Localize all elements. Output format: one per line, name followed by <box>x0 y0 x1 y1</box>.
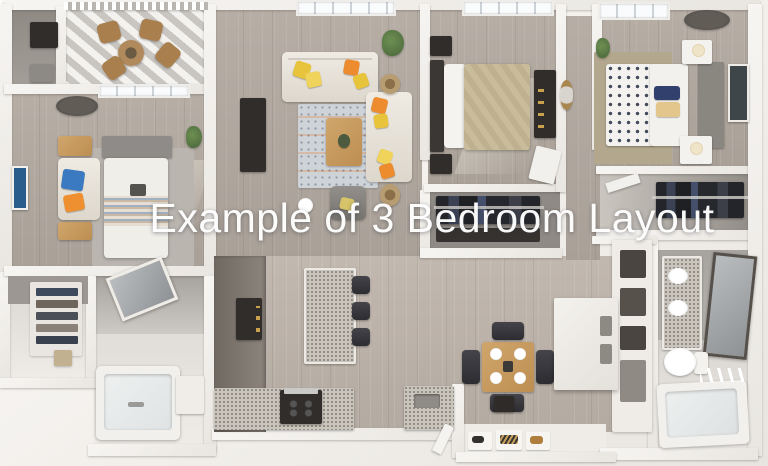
bedroom-2-dresser-handles <box>538 80 544 128</box>
bedroom-3-lamp-top <box>692 44 705 57</box>
stove-burners <box>286 398 316 418</box>
wall-closet1-bottom <box>0 378 96 388</box>
linen-cubby-3 <box>620 326 646 350</box>
bedroom-1-headboard <box>102 136 172 158</box>
bedroom-2-nightstand-top <box>430 36 452 56</box>
bedroom-1-window <box>98 84 190 98</box>
linen-cubby-1 <box>620 250 646 278</box>
wall-below-bedroom1 <box>4 266 216 276</box>
bedroom-2-headboard <box>430 60 444 152</box>
kitchen-refrigerator-handles <box>256 306 260 332</box>
storage-shelving-unit <box>30 22 58 48</box>
bathroom-1-vanity <box>176 376 204 414</box>
wall-closet2-bottom <box>420 248 562 258</box>
wall-bedroom3-bottom <box>596 166 758 174</box>
bedroom-3-lamp-bottom <box>690 142 703 155</box>
bedroom-1-orange-pillow <box>63 192 86 212</box>
wall-bath2-bottom <box>600 448 758 460</box>
bedroom-2-pillows <box>444 64 466 148</box>
laundry-cabinet-drawer-1 <box>600 316 612 336</box>
bedroom-2-nightstand-bottom <box>430 154 452 174</box>
dining-chair-top <box>492 322 524 340</box>
wall-entry-bottom <box>456 452 616 462</box>
bathroom-2-sink-2 <box>668 300 688 316</box>
bar-stool-3 <box>352 328 370 346</box>
wicker-side-table <box>380 74 400 94</box>
closet-1-folded-clothes-5 <box>36 336 78 344</box>
bedroom-3-tan-pillow <box>656 102 680 117</box>
linen-cubby-2 <box>620 288 646 316</box>
bar-stool-1 <box>352 276 370 294</box>
bedroom-1-wall-art <box>12 166 28 210</box>
bedroom-3-navy-pillow <box>654 86 680 100</box>
storage-utility-box <box>30 64 54 82</box>
living-room-plant <box>382 30 404 56</box>
closet-1-basket <box>54 350 72 366</box>
loveseat-yellow-pillow-1 <box>373 113 389 129</box>
kitchen-sink-basin <box>414 394 440 408</box>
dining-plate-4 <box>514 372 526 384</box>
bedroom-3-wall-art <box>728 64 749 122</box>
outer-wall-left-upper <box>0 4 12 272</box>
bathroom-2-towel-bars <box>700 368 744 382</box>
bedroom-2-tan-duvet <box>464 64 530 150</box>
closet-1-folded-clothes-2 <box>36 300 78 308</box>
bedroom-3-polka-dot-duvet <box>606 64 654 146</box>
living-room-window <box>296 0 396 16</box>
patio-chair-2 <box>138 18 164 42</box>
bar-stool-2 <box>352 302 370 320</box>
bathroom-2-sink-1 <box>668 268 688 284</box>
closet-1-folded-clothes-3 <box>36 312 78 320</box>
bedroom-1-bed-tray <box>130 184 146 196</box>
hallway-round-mirror <box>560 80 573 110</box>
bathroom-2-toilet-bowl <box>664 348 696 376</box>
floor-plan-image: Example of 3 Bedroom Layout <box>0 0 768 466</box>
dining-chair-right <box>536 350 554 384</box>
dining-centerpiece <box>503 361 513 372</box>
wall-storage-patio <box>56 6 66 92</box>
bedroom-1-ceiling-fan-icon <box>56 96 98 116</box>
bathroom-1-faucet <box>128 402 144 407</box>
bedroom-1-nightstand-top <box>58 136 92 156</box>
patio-railing <box>64 2 208 10</box>
bedroom-3-ceiling-fan-icon <box>684 10 730 30</box>
sofa-yellow-pillow-2 <box>305 71 323 89</box>
overlay-title: Example of 3 Bedroom Layout <box>96 196 768 240</box>
dining-chair-left <box>462 350 480 384</box>
bedroom-1-plant <box>186 126 202 148</box>
linen-cubby-4 <box>620 360 646 402</box>
bedroom-3-plant <box>596 38 610 58</box>
entry-shoes-stripe <box>500 435 518 444</box>
laundry-cabinet-drawer-2 <box>600 344 612 364</box>
dining-plate-3 <box>490 372 502 384</box>
bedroom-1-blue-pillow <box>61 169 86 192</box>
bathroom-2-bathtub-basin <box>665 388 739 438</box>
entry-shoes-tan <box>530 436 543 444</box>
wall-living-bedroom2 <box>420 4 430 160</box>
dining-plate-2 <box>514 348 526 360</box>
bedroom-3-window <box>598 2 670 20</box>
living-room-tv-console <box>240 98 266 172</box>
closet-1-folded-clothes-4 <box>36 324 78 332</box>
dining-plate-1 <box>490 348 502 360</box>
wall-bedroom2-closet2 <box>424 184 560 192</box>
bedroom-1-nightstand-bottom <box>58 222 92 240</box>
wall-bath1-bottom <box>88 444 216 456</box>
stove-control-panel <box>284 388 318 394</box>
closet-1-folded-clothes-1 <box>36 288 78 296</box>
entry-thermostat-panel <box>494 396 514 412</box>
coffee-table-decor <box>338 134 350 148</box>
entry-shoes-dark <box>472 436 484 443</box>
kitchen-island <box>304 268 356 364</box>
bedroom-2-window <box>462 0 554 16</box>
living-room-sofa-backline <box>288 58 372 60</box>
